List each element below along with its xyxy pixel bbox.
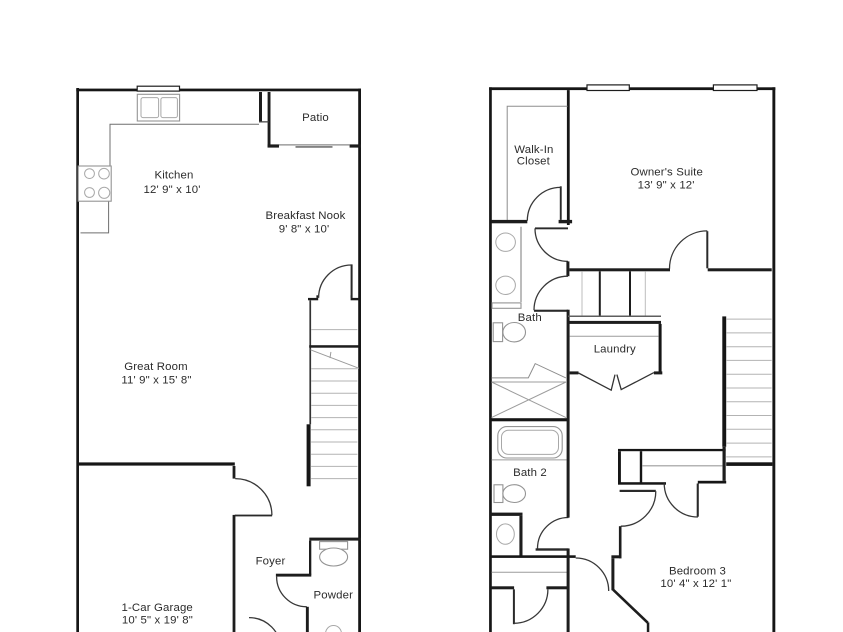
svg-text:Bath 2: Bath 2 [513,467,547,479]
svg-text:Breakfast Nook: Breakfast Nook [266,210,346,222]
svg-text:11' 9" x 15' 8": 11' 9" x 15' 8" [121,375,191,387]
svg-text:Walk-In: Walk-In [514,144,553,156]
svg-text:Bedroom 3: Bedroom 3 [669,565,726,577]
svg-text:Foyer: Foyer [256,556,286,568]
svg-text:Kitchen: Kitchen [154,170,193,182]
svg-text:Closet: Closet [517,156,551,168]
svg-text:10' 4" x 12' 1": 10' 4" x 12' 1" [660,578,731,590]
svg-text:Powder: Powder [314,590,354,602]
svg-text:Owner's Suite: Owner's Suite [630,166,703,178]
svg-text:1-Car Garage: 1-Car Garage [121,602,192,614]
svg-text:13' 9" x 12': 13' 9" x 12' [638,179,695,191]
svg-text:Patio: Patio [302,112,329,124]
svg-text:9' 8" x 10': 9' 8" x 10' [279,224,330,236]
svg-text:10' 5" x 19' 8": 10' 5" x 19' 8" [122,615,193,627]
svg-text:12' 9" x 10': 12' 9" x 10' [143,184,200,196]
svg-text:Great Room: Great Room [124,361,188,373]
svg-text:Bath: Bath [518,312,542,324]
svg-text:Laundry: Laundry [594,344,636,356]
